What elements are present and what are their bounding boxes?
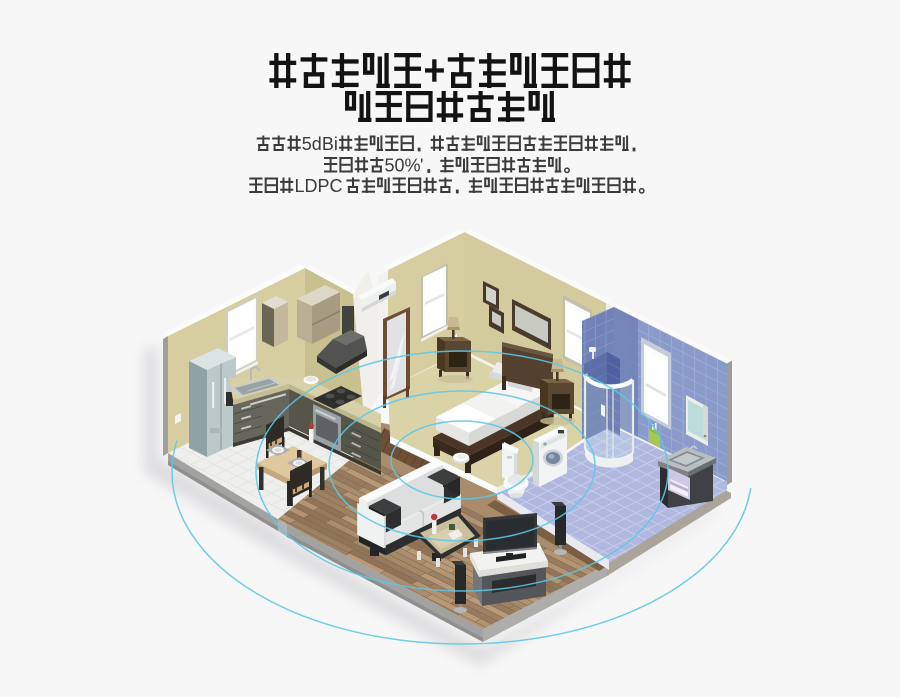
svg-text:LDPC: LDPC bbox=[295, 176, 343, 196]
svg-text:ʹ: ʹ bbox=[420, 155, 423, 175]
svg-text:5dBi: 5dBi bbox=[302, 134, 338, 154]
svg-text:50%: 50% bbox=[385, 155, 421, 175]
